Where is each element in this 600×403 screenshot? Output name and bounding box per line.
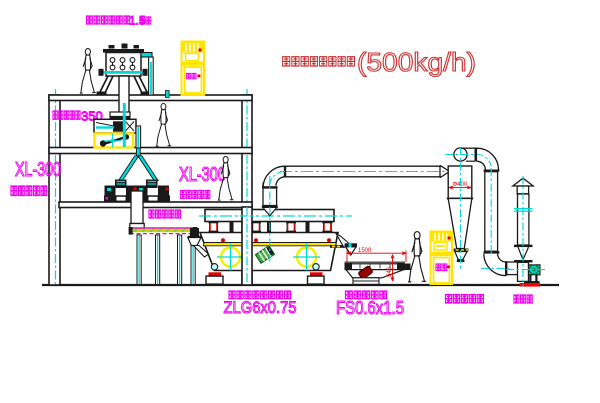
svg-text:ZLG6x0.75: ZLG6x0.75 [224, 298, 297, 317]
svg-text:(500kg/h): (500kg/h) [357, 47, 476, 77]
svg-text:XL-300: XL-300 [179, 164, 226, 186]
svg-text:FS0.6x1.5: FS0.6x1.5 [336, 298, 404, 318]
svg-text:546: 546 [387, 266, 393, 277]
svg-text:XL-300: XL-300 [15, 159, 61, 181]
svg-text:1500: 1500 [358, 248, 372, 254]
